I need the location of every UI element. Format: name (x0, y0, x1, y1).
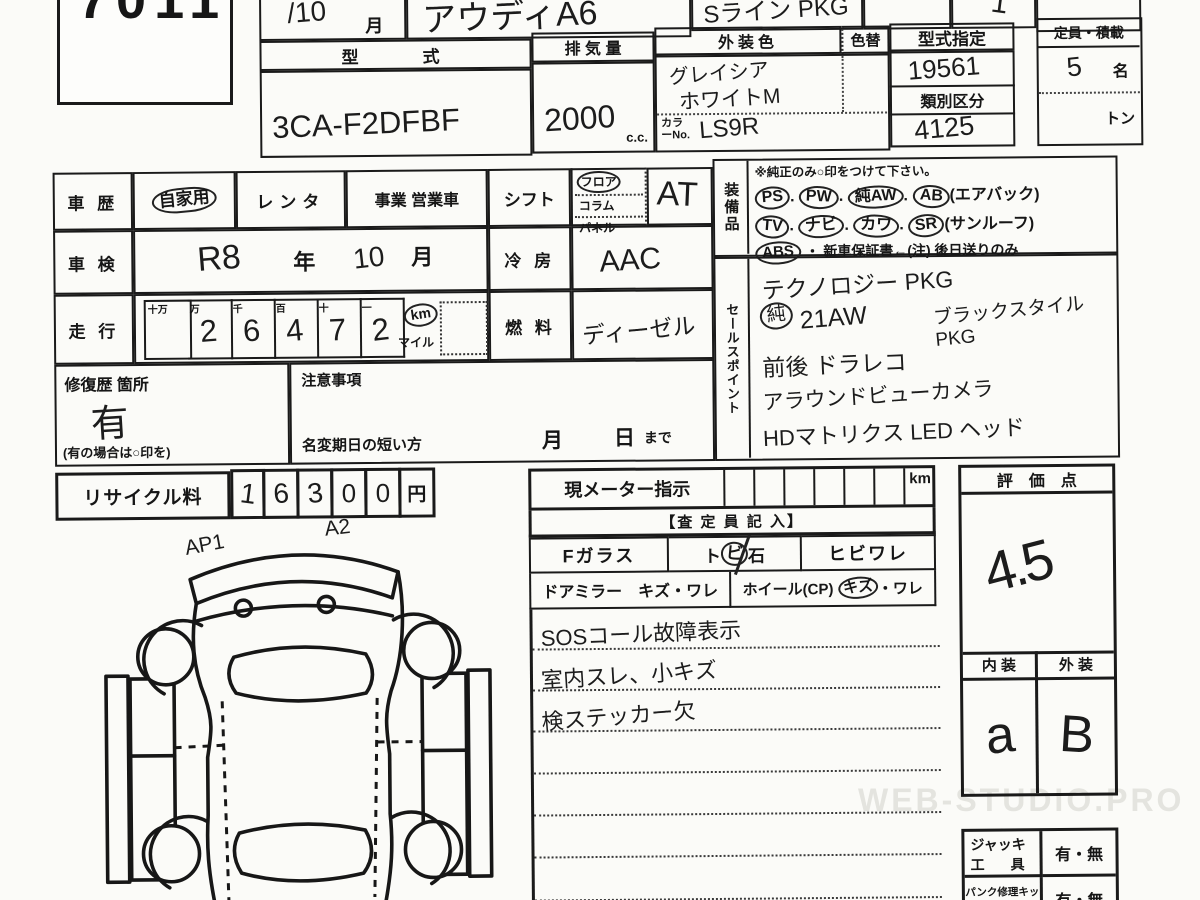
capacity-header: 定員・積載 (1038, 19, 1139, 48)
displacement-unit: c.c. (626, 130, 648, 145)
type-designation-header: 型式指定 (889, 22, 1014, 51)
caution-label: 注意事項 (301, 369, 361, 391)
fuel-value-cell: ディーゼル (572, 289, 715, 360)
repair-history-note: (有の場合は○印を) (63, 442, 171, 462)
mileage-label-cell: 走 行 (54, 294, 135, 365)
caution-box: 注意事項 名変期日の短い方 月 日 まで (289, 359, 715, 465)
type-designation-cell: 19561 類別区分 4125 (890, 50, 1016, 147)
puncture-options-cell: 有・無 (1043, 877, 1116, 900)
ac-value-cell: AAC (571, 225, 714, 290)
displacement-value: 2000 (543, 98, 616, 139)
fglass-label-cell: Fガラス (529, 536, 669, 573)
mirror-label-cell: ドアミラー キズ・ワレ (529, 572, 731, 610)
color-no-label: カラーNo. (661, 117, 691, 141)
shift-value: AT (656, 174, 699, 215)
ac-label-cell: 冷 房 (488, 226, 572, 291)
fuel-label-cell: 燃 料 (489, 290, 573, 361)
equipment-label-cell: 装備品 (714, 161, 749, 254)
km-unit-circle: km (402, 301, 439, 329)
jack-label-cell: ジャッキ 工 具 (964, 831, 1042, 878)
mirror-wheel-row: ドアミラー キズ・ワレ ホイール(CP) キズ・ワレ (529, 570, 936, 610)
note-line: 検ステッカー欠 (540, 693, 696, 737)
note-line: SOSコール故障表示 (540, 612, 742, 653)
capacity-value: 5 (1065, 51, 1083, 84)
odometer-cell: 十万 万 2 千 6 百 4 十 7 (134, 291, 490, 364)
equipment-box: 装備品 ※純正のみ○印をつけて下さい。 PS. PW. 純AW. AB(エアバッ… (712, 155, 1118, 257)
equipment-row2: TV. ナビ. カワ. SR(サンルーフ) (755, 209, 1113, 240)
sales-point-line2: 21AW (799, 301, 868, 335)
car-top-view-drawing (93, 513, 504, 900)
score-value: 4.5 (977, 526, 1057, 605)
meter-row: 現メーター指示 km (528, 465, 935, 511)
recycle-unit: 円 (407, 479, 426, 506)
jack-options-cell: 有・無 (1042, 831, 1115, 878)
wheel-label-cell: ホイール(CP) キズ・ワレ (731, 570, 936, 608)
inspection-label-cell: 車 検 (53, 230, 134, 295)
meter-digit-cell (753, 469, 785, 505)
name-change-day: 日 (614, 422, 635, 452)
equipment-content: ※純正のみ○印をつけて下さい。 PS. PW. 純AW. AB(エアバック) T… (754, 159, 1113, 265)
name-change-month: 月 (542, 424, 563, 454)
model-code-cell: 3CA-F2DFBF (260, 69, 533, 158)
inspection-era: R8 (196, 238, 242, 280)
equipment-row1-suffix: (エアバック) (949, 186, 1039, 204)
ac-value: AAC (598, 242, 662, 280)
mile-box (440, 301, 488, 355)
equipment-row1: PS. PW. 純AW. AB(エアバック) (755, 180, 1113, 211)
fglass-opt1-cell: トビ石 (669, 535, 802, 572)
meter-digit-cell (783, 469, 815, 505)
repair-history-box: 修復歴 箇所 有 (有の場合は○印を) (54, 363, 290, 467)
fuel-value: ディーゼル (581, 306, 697, 351)
color-change-header: 色替 (841, 25, 889, 53)
exterior-value: B (1057, 704, 1095, 766)
name-change-made: まで (644, 427, 672, 447)
meter-digit-cell (723, 470, 755, 506)
interior-header: 内 装 (982, 654, 1016, 675)
exterior-header: 外 装 (1059, 653, 1093, 674)
car-damage-diagram: AP1 A2 (93, 513, 504, 900)
score-box: 評 価 点 4.5 内 装 外 装 a B (958, 464, 1118, 797)
month-suffix: 月 (365, 12, 383, 38)
displacement-header: 排 気 量 (531, 32, 654, 63)
capacity-unit: 名 (1113, 57, 1129, 81)
ext-color-header: 外装色 (654, 26, 841, 56)
inspection-month: 10 (352, 240, 387, 275)
capacity-box: 定員・積載 5 名 トン (1036, 17, 1143, 146)
inspection-value-cell: R8 年 10 月 (133, 227, 489, 294)
puncture-label-cell: パンク修理キット (965, 877, 1043, 900)
repair-history-value: 有 (89, 391, 130, 448)
shift-floor: フロア (581, 175, 617, 189)
shift-label-cell: シフト (488, 168, 572, 227)
tools-box: ジャッキ 工 具 有・無 パンク修理キット 有・無 (961, 827, 1119, 900)
displacement-cell: 2000 c.c. (532, 62, 656, 154)
history-rental-cell: レンタ (236, 170, 347, 229)
assessor-notes-area: SOSコール故障表示 室内スレ、小キズ 検ステッカー欠 (529, 606, 942, 900)
shift-column: コラム (579, 199, 615, 213)
history-label-cell: 車 歴 (53, 172, 134, 231)
name-change-label: 名変期日の短い方 (302, 434, 422, 456)
sales-point-line2b: ブラックスタイルPKG (932, 286, 1119, 352)
sales-point-line5: HDマトリクス LED ヘッド (762, 410, 1025, 453)
ton-label: トン (1105, 107, 1135, 128)
model-code-value: 3CA-F2DFBF (271, 102, 460, 146)
color-change-divider (842, 56, 844, 112)
ext-color-line2: ホワイトM (678, 80, 781, 116)
capacity-divider (1039, 91, 1140, 94)
sales-points-label-cell: セールスポイント (715, 259, 751, 458)
assessor-header-row: 【査 定 員 記 入】 (529, 507, 936, 538)
shift-options-cell: フロア コラム パネル (571, 168, 648, 227)
score-value-cell: 4.5 (961, 491, 1113, 655)
sales-point-line1: テクノロジー PKG (761, 260, 954, 306)
history-business-cell: 事業 営業車 (346, 169, 489, 228)
sheet-body: /10 月 アウディA6 Sライン PKG 1 型 式 3CA-F2DFBF 排… (0, 0, 1200, 900)
equipment-row2-suffix: (サンルーフ) (944, 216, 1034, 234)
inspection-month-suffix: 月 (411, 239, 433, 271)
meter-label-cell: 現メーター指示 (531, 470, 725, 508)
damage-mark-a2: A2 (323, 515, 351, 542)
meter-km-unit: km (909, 470, 931, 487)
history-private: 自家用 (158, 188, 211, 212)
shift-value-cell: AT (647, 167, 714, 226)
note-line: 室内スレ、小キズ (540, 652, 718, 695)
count-mark: 1 (989, 0, 1010, 21)
interior-value: a (982, 704, 1018, 767)
type-designation-value: 19561 (907, 50, 982, 87)
recycle-label-cell: リサイクル料 (55, 471, 230, 521)
color-no-value: LS9R (698, 113, 760, 146)
class-value: 4125 (913, 110, 976, 147)
inspection-year-suffix: 年 (293, 244, 315, 276)
fglass-opt2-cell: ヒビワレ (802, 534, 936, 571)
meter-digit-cell (873, 468, 905, 504)
meter-digit-cell (813, 469, 845, 505)
equipment-note: ※純正のみ○印をつけて下さい。 (754, 159, 1112, 181)
mile-label: マイル (398, 333, 434, 350)
model-code-header: 型 式 (259, 39, 531, 71)
sales-point-line3: 前後 ドラレコ (762, 343, 908, 383)
sales-points-box: セールスポイント テクノロジー PKG 純 21AW ブラックスタイルPKG 前… (713, 253, 1120, 461)
meter-digit-cell (843, 469, 875, 505)
score-subvalues: a B (963, 677, 1115, 794)
history-private-cell: 自家用 (133, 171, 237, 230)
ext-color-cell: グレイシア ホワイトM カラーNo. LS9R (655, 53, 891, 152)
fglass-row: Fガラス トビ石 ヒビワレ (529, 534, 936, 574)
auction-month-value: /10 (286, 0, 327, 30)
class-header: 類別区分 (890, 84, 1015, 115)
auction-sheet-scan: WEB-STUDIO.PRO 7011 /10 月 アウディA6 Sライン PK… (0, 0, 1200, 900)
auction-month-cell: /10 月 (259, 0, 406, 41)
